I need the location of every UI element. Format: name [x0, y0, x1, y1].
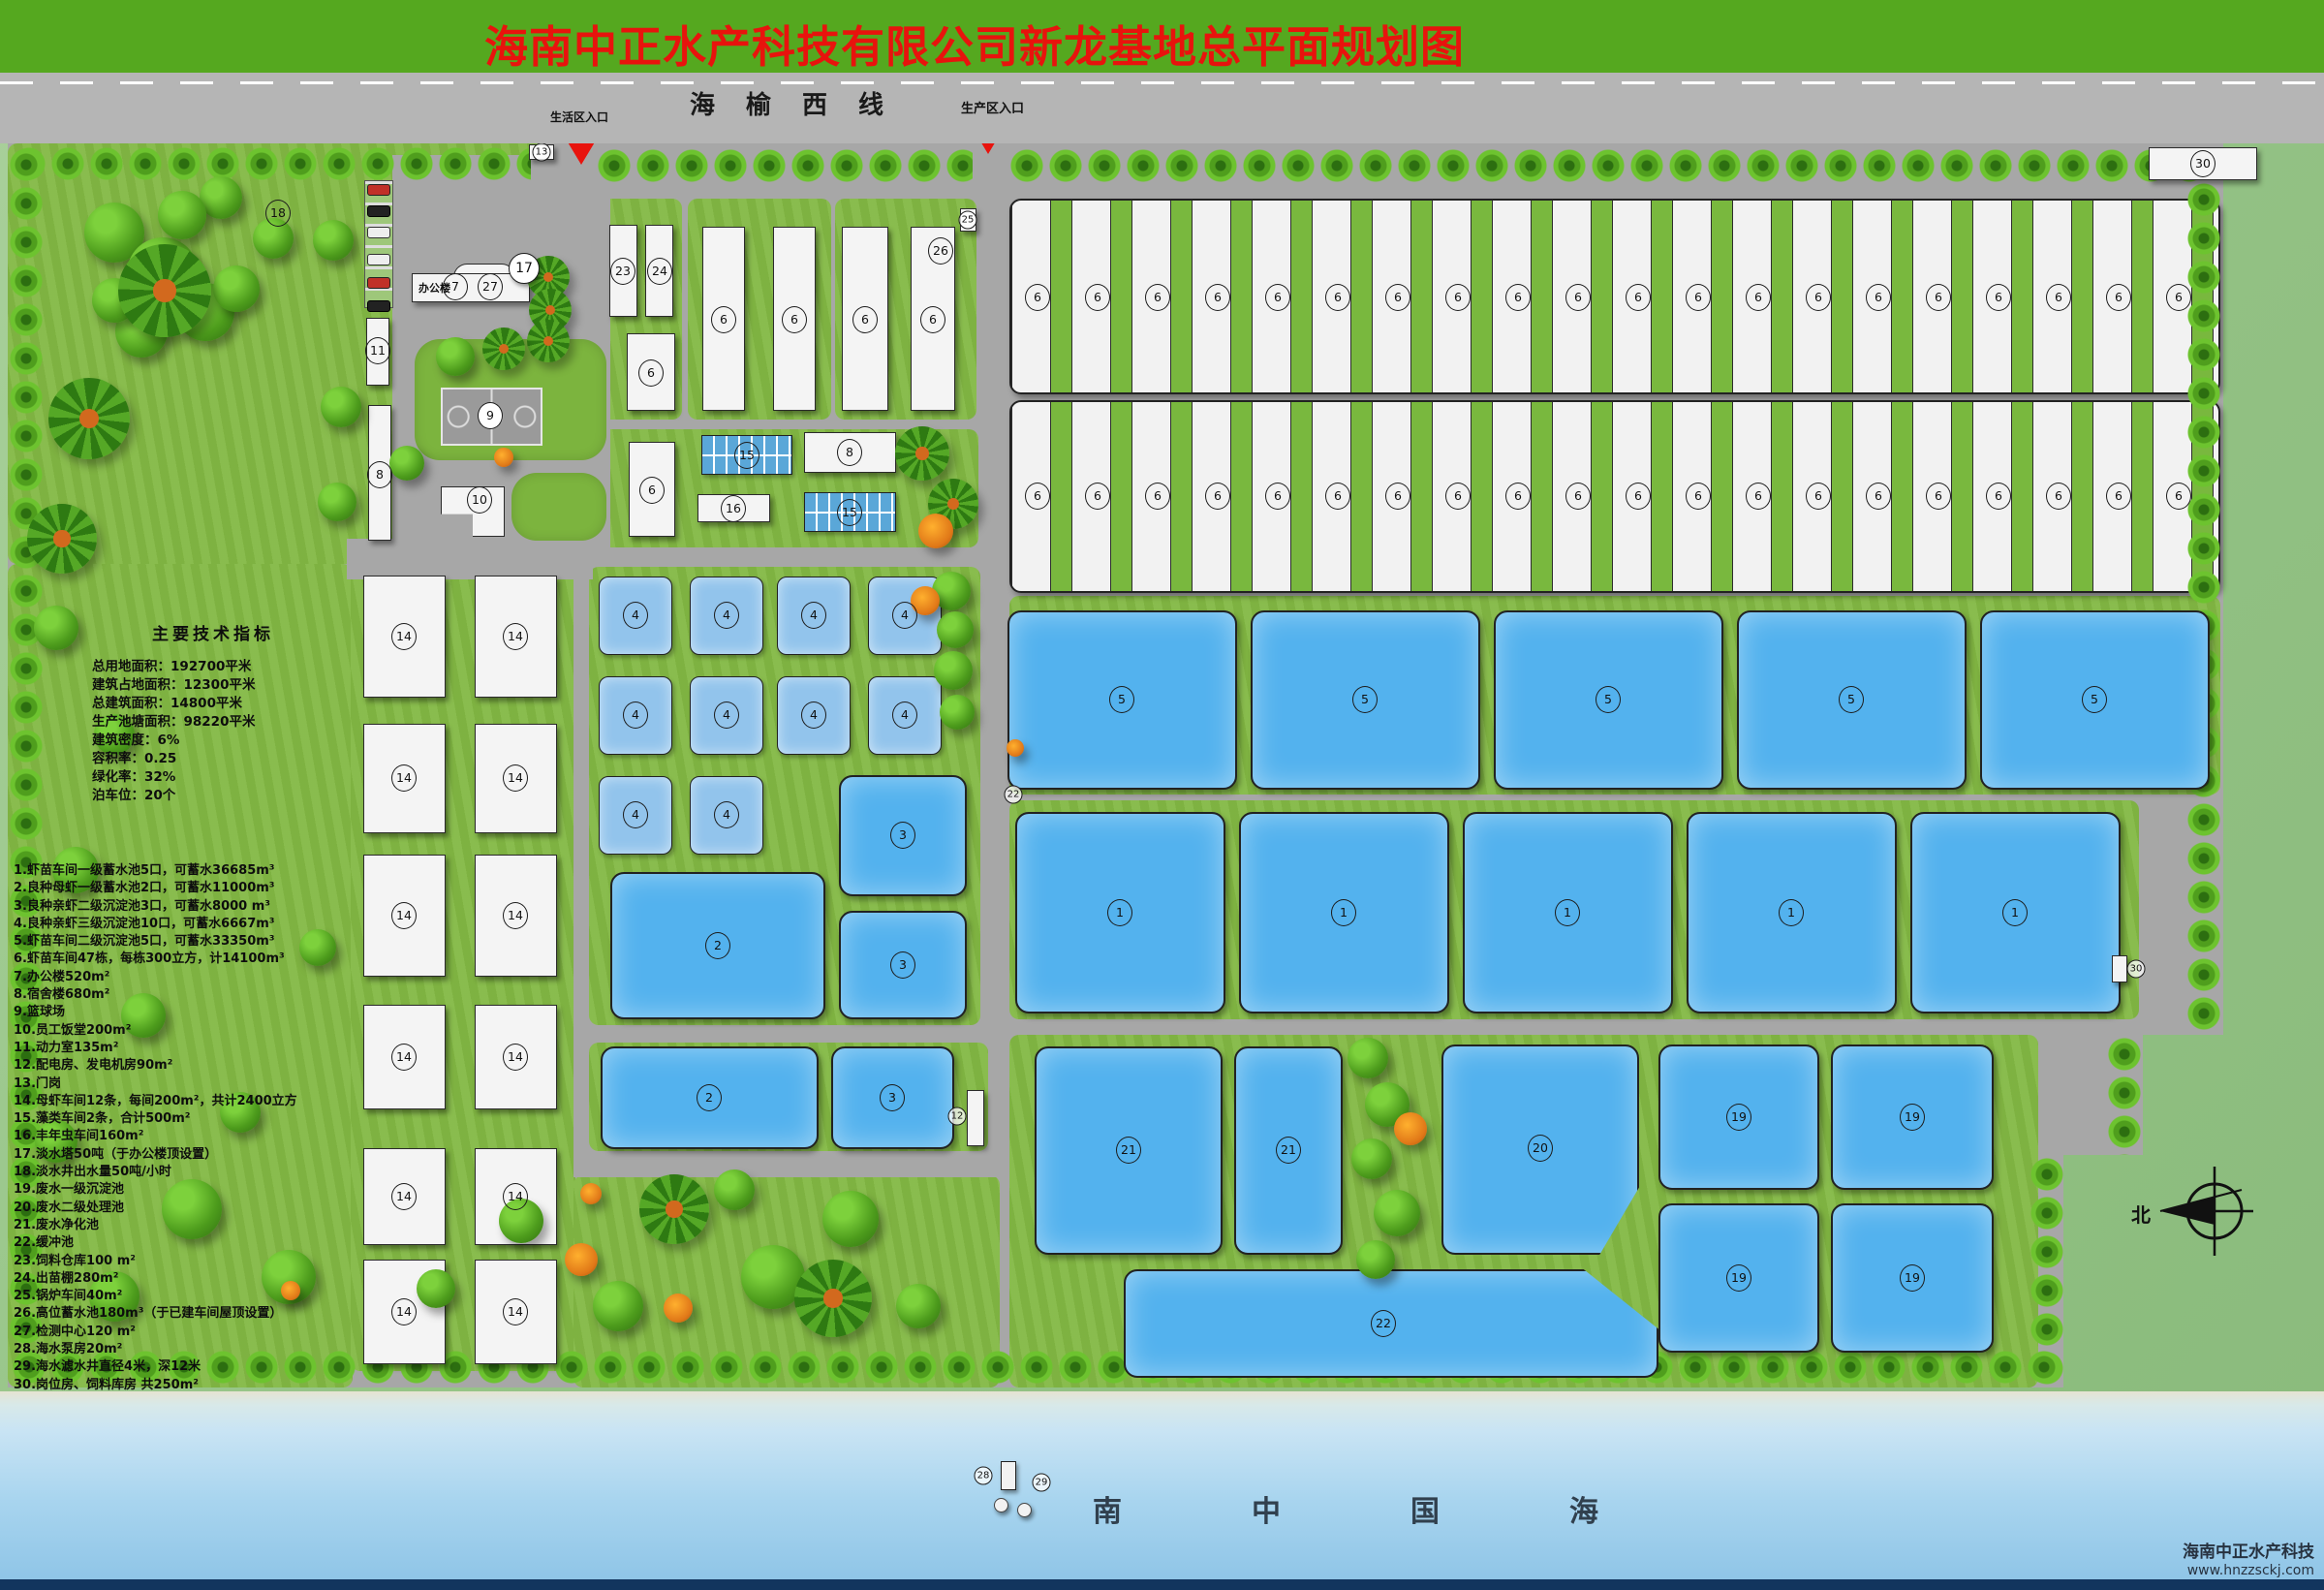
list-line: 27.检测中心120 m²	[14, 1324, 362, 1341]
circled-label-13: 13	[533, 143, 551, 162]
list-line: 20.废水二级处理池	[14, 1200, 362, 1217]
strips	[1009, 199, 2220, 394]
circled-label-14: 14	[503, 623, 528, 650]
circled-label-4: 4	[892, 701, 917, 729]
road	[573, 1152, 1000, 1177]
circled-label-6: 6	[1505, 284, 1531, 311]
tech-indicators-block: 主要技术指标 总用地面积：192700平米建筑占地面积：12300平米总建筑面积…	[92, 620, 334, 805]
legend-block: 1.虾苗车间一级蓄水池5口，可蓄水36685m³2.良种母虾一级蓄水池2口，可蓄…	[14, 862, 362, 1394]
circled-label-1: 1	[1779, 899, 1804, 926]
tree-icon	[822, 1191, 879, 1247]
circled-label-6: 6	[1986, 483, 2011, 510]
site-plan-stage: 1813727171189102324252666666615816156666…	[0, 0, 2324, 1590]
circled-label-6: 6	[2106, 284, 2131, 311]
circled-label-20: 20	[1528, 1135, 1553, 1162]
palm-icon	[48, 378, 130, 459]
circled-label-6: 6	[1265, 284, 1290, 311]
well	[994, 1498, 1008, 1512]
pump	[1001, 1461, 1016, 1490]
circled-label-15: 15	[734, 442, 759, 469]
list-line: 生产池塘面积：98220平米	[92, 713, 334, 732]
list-line: 建筑密度：6%	[92, 732, 334, 750]
living-entrance-label: 生活区入口	[550, 109, 608, 125]
circled-label-6: 6	[1926, 483, 1951, 510]
road	[573, 567, 589, 1175]
list-line: 总用地面积：192700平米	[92, 658, 334, 676]
shrub-icon	[918, 514, 953, 548]
circled-label-6: 6	[2106, 483, 2131, 510]
tree-icon	[417, 1269, 455, 1308]
garden	[511, 473, 606, 541]
circled-label-29: 29	[1033, 1474, 1051, 1492]
circled-label-5: 5	[1596, 686, 1621, 713]
circled-label-5: 5	[1352, 686, 1378, 713]
hedge-v	[2185, 180, 2222, 1035]
tree-icon	[934, 651, 973, 690]
circled-label-14: 14	[391, 623, 417, 650]
hedge-h	[1007, 147, 2220, 184]
circled-label-6: 6	[2046, 483, 2071, 510]
circled-label-6: 6	[782, 306, 807, 333]
circled-label-4: 4	[801, 602, 826, 629]
circled-label-6: 6	[1626, 284, 1651, 311]
tree-icon	[593, 1281, 643, 1331]
circled-label-1: 1	[2002, 899, 2028, 926]
circled-label-14: 14	[503, 1044, 528, 1071]
parking	[364, 180, 393, 308]
circled-label-6: 6	[1565, 483, 1591, 510]
circled-label-19: 19	[1726, 1264, 1751, 1292]
circled-label-9: 9	[478, 402, 503, 429]
circled-label-6: 6	[1806, 483, 1831, 510]
hedge-h	[10, 145, 531, 182]
compass-north-label: 北	[2131, 1200, 2151, 1228]
circled-label-1: 1	[1331, 899, 1356, 926]
circled-label-23: 23	[610, 258, 635, 285]
car-r	[367, 277, 390, 289]
circled-label-4: 4	[801, 701, 826, 729]
car-w	[367, 227, 390, 238]
tree-icon	[389, 446, 424, 481]
list-line: 8.宿舍楼680m²	[14, 986, 362, 1004]
circled-label-6: 6	[1025, 483, 1050, 510]
tree-icon	[436, 337, 475, 376]
circled-label-3: 3	[890, 822, 915, 849]
circled-label-2: 2	[697, 1084, 722, 1111]
tree-icon	[1351, 1138, 1392, 1179]
circled-label-14: 14	[391, 1298, 417, 1325]
circled-label-6: 6	[1445, 284, 1471, 311]
circled-label-6: 6	[638, 359, 664, 387]
circled-label-5: 5	[1839, 686, 1864, 713]
tree-icon	[714, 1169, 755, 1210]
list-line: 21.废水净化池	[14, 1217, 362, 1234]
list-line: 6.虾苗车间47栋，每栋300立方，计14100m³	[14, 951, 362, 968]
circled-label-6: 6	[1505, 483, 1531, 510]
circled-label-14: 14	[503, 764, 528, 792]
list-line: 29.海水滤水井直径4米，深12米	[14, 1358, 362, 1376]
tree-icon	[313, 220, 354, 261]
circled-label-6: 6	[1746, 284, 1771, 311]
b	[967, 1090, 984, 1146]
tree-icon	[940, 695, 975, 730]
circled-label-6: 6	[1866, 284, 1891, 311]
list-line: 19.废水一级沉淀池	[14, 1181, 362, 1199]
tree-icon	[937, 611, 974, 648]
b	[2112, 955, 2127, 982]
list-line: 5.虾苗车间二级沉淀池5口，可蓄水33350m³	[14, 933, 362, 951]
circled-label-14: 14	[391, 1183, 417, 1210]
palm-icon	[794, 1260, 872, 1337]
circled-label-19: 19	[1900, 1104, 1925, 1131]
circled-label-6: 6	[920, 306, 945, 333]
circled-label-19: 19	[1900, 1264, 1925, 1292]
circled-label-22: 22	[1005, 786, 1023, 804]
circled-label-6: 6	[639, 477, 665, 504]
palm-icon	[482, 327, 525, 370]
tree-icon	[1356, 1240, 1395, 1279]
tree-icon	[158, 191, 206, 239]
circled-label-30: 30	[2127, 960, 2146, 979]
list-line: 10.员工饭堂200m²	[14, 1022, 362, 1040]
circled-label-6: 6	[2166, 483, 2191, 510]
circled-label-6: 6	[1325, 284, 1350, 311]
circled-label-6: 6	[1385, 284, 1410, 311]
circled-label-6: 6	[1806, 284, 1831, 311]
sea-bottom-bar	[0, 1579, 2324, 1590]
circled-label-4: 4	[623, 801, 648, 828]
circled-label-6: 6	[1145, 483, 1170, 510]
circled-label-6: 6	[1445, 483, 1471, 510]
circled-label-14: 14	[503, 1298, 528, 1325]
car-w	[367, 254, 390, 265]
production-entrance-label: 生产区入口	[961, 98, 1024, 116]
circled-label-4: 4	[714, 701, 739, 729]
list-line: 1.虾苗车间一级蓄水池5口，可蓄水36685m³	[14, 862, 362, 880]
circled-label-17: 17	[509, 253, 540, 284]
list-line: 26.高位蓄水池180m³（于已建车间屋顶设置）	[14, 1305, 362, 1323]
circled-label-4: 4	[623, 602, 648, 629]
hedge-v	[2106, 1035, 2141, 1155]
tree-icon	[318, 483, 356, 521]
list-line: 2.良种母虾一级蓄水池2口，可蓄水11000m³	[14, 880, 362, 897]
circled-label-14: 14	[503, 1183, 528, 1210]
road-name-label: 海榆西线	[690, 85, 914, 121]
hedge-h	[595, 147, 973, 184]
list-line: 15.藻类车间2条，合计500m²	[14, 1110, 362, 1128]
list-line: 绿化率：32%	[92, 768, 334, 787]
palm-icon	[27, 504, 97, 574]
circled-label-10: 10	[467, 486, 492, 514]
list-line: 9.篮球场	[14, 1004, 362, 1021]
list-line: 4.良种亲虾三级沉淀池10口，可蓄水6667m³	[14, 916, 362, 933]
circled-label-15: 15	[837, 499, 862, 526]
tree-icon	[213, 265, 260, 312]
circled-label-22: 22	[1371, 1310, 1396, 1337]
list-line: 24.出苗棚280m²	[14, 1270, 362, 1288]
circled-label-3: 3	[890, 951, 915, 979]
tree-icon	[896, 1284, 941, 1328]
circled-label-6: 6	[1145, 284, 1170, 311]
circled-label-14: 14	[391, 1044, 417, 1071]
circled-label-11: 11	[365, 337, 390, 364]
compass-icon	[2154, 1163, 2263, 1260]
circled-label-6: 6	[711, 306, 736, 333]
list-line: 3.良种亲虾二级沉淀池3口，可蓄水8000 m³	[14, 898, 362, 916]
list-line: 23.饲料仓库100 m²	[14, 1253, 362, 1270]
list-line: 18.淡水井出水量50吨/小时	[14, 1164, 362, 1181]
circled-label-6: 6	[1025, 284, 1050, 311]
circled-label-1: 1	[1107, 899, 1132, 926]
palm-icon	[895, 426, 949, 481]
shrub-icon	[1007, 739, 1024, 757]
circled-label-8: 8	[367, 461, 392, 488]
tree-icon	[1348, 1038, 1388, 1078]
list-line: 17.淡水塔50吨（于办公楼顶设置）	[14, 1146, 362, 1164]
list-line: 容积率：0.25	[92, 750, 334, 768]
circled-label-4: 4	[714, 801, 739, 828]
legend-list: 1.虾苗车间一级蓄水池5口，可蓄水36685m³2.良种母虾一级蓄水池2口，可蓄…	[14, 862, 362, 1394]
circled-label-2: 2	[705, 932, 730, 959]
circled-label-6: 6	[2046, 284, 2071, 311]
circled-label-6: 6	[852, 306, 878, 333]
company-logo-url: www.hnzzsckj.com	[2183, 1562, 2314, 1579]
shrub-icon	[580, 1183, 602, 1204]
circled-label-5: 5	[2082, 686, 2107, 713]
circled-label-6: 6	[1686, 483, 1711, 510]
shrub-icon	[565, 1243, 598, 1276]
circled-label-14: 14	[503, 902, 528, 929]
circled-label-1: 1	[1555, 899, 1580, 926]
shrub-icon	[1394, 1112, 1427, 1145]
circled-label-6: 6	[1565, 284, 1591, 311]
list-line: 14.母虾车间12条，每间200m²，共计2400立方	[14, 1093, 362, 1110]
car-r	[367, 184, 390, 196]
page-title: 海南中正水产科技有限公司新龙基地总平面规划图	[484, 12, 1841, 75]
circled-label-21: 21	[1276, 1137, 1301, 1164]
list-line: 13.门岗	[14, 1076, 362, 1093]
circled-label-6: 6	[1205, 284, 1230, 311]
circled-label-5: 5	[1109, 686, 1134, 713]
road	[347, 539, 593, 579]
tech-indicators-title: 主要技术指标	[92, 620, 334, 644]
circled-label-6: 6	[1085, 284, 1110, 311]
palm-icon	[527, 320, 570, 362]
circled-label-30: 30	[2190, 150, 2216, 177]
company-logo: 海南中正水产科技 www.hnzzsckj.com	[2183, 1543, 2314, 1579]
circled-label-14: 14	[391, 902, 417, 929]
circled-label-6: 6	[2166, 284, 2191, 311]
circled-label-6: 6	[1205, 483, 1230, 510]
circled-label-6: 6	[1265, 483, 1290, 510]
list-line: 30.岗位房、饲料库房 共250m²	[14, 1377, 362, 1394]
circled-label-6: 6	[1986, 284, 2011, 311]
circled-label-6: 6	[1686, 284, 1711, 311]
list-line: 7.办公楼520m²	[14, 969, 362, 986]
circled-label-16: 16	[721, 495, 746, 522]
circled-label-4: 4	[714, 602, 739, 629]
company-logo-name: 海南中正水产科技	[2183, 1543, 2314, 1562]
road-center-line	[0, 81, 2324, 84]
circled-label-6: 6	[1746, 483, 1771, 510]
circled-label-18: 18	[265, 200, 291, 227]
palm-icon	[639, 1174, 709, 1244]
list-line: 泊车位：20个	[92, 787, 334, 805]
circled-label-4: 4	[892, 602, 917, 629]
circled-label-4: 4	[623, 701, 648, 729]
list-line: 16.丰年虫车间160m²	[14, 1128, 362, 1145]
circled-label-27: 27	[478, 273, 503, 300]
circled-label-3: 3	[880, 1084, 905, 1111]
circled-label-6: 6	[1866, 483, 1891, 510]
list-line: 12.配电房、发电机房90m²	[14, 1057, 362, 1075]
circled-label-28: 28	[975, 1467, 993, 1485]
circled-label-6: 6	[1926, 284, 1951, 311]
list-line: 总建筑面积：14800平米	[92, 695, 334, 713]
car-k	[367, 300, 390, 312]
circled-label-25: 25	[959, 211, 977, 230]
list-line: 建筑占地面积：12300平米	[92, 676, 334, 695]
circled-label-24: 24	[647, 258, 672, 285]
circled-label-6: 6	[1626, 483, 1651, 510]
tree-icon	[1374, 1190, 1420, 1236]
shrub-icon	[664, 1294, 693, 1323]
list-line: 11.动力室135m²	[14, 1040, 362, 1057]
palm-icon	[118, 244, 211, 337]
circled-label-8: 8	[837, 439, 862, 466]
tech-indicators-list: 总用地面积：192700平米建筑占地面积：12300平米总建筑面积：14800平…	[92, 658, 334, 805]
shrub-icon	[494, 448, 513, 467]
circled-label-14: 14	[391, 764, 417, 792]
well	[1017, 1503, 1032, 1517]
sea-name-label: 南 中 国 海	[1093, 1487, 1649, 1530]
strips	[1009, 400, 2220, 593]
car-k	[367, 205, 390, 217]
circled-label-26: 26	[928, 237, 953, 265]
list-line: 22.缓冲池	[14, 1234, 362, 1252]
list-line: 28.海水泵房20m²	[14, 1341, 362, 1358]
office-building-label: 办公楼	[418, 280, 450, 296]
circled-label-6: 6	[1385, 483, 1410, 510]
tree-icon	[34, 606, 78, 650]
tree-icon	[321, 387, 361, 427]
circled-label-12: 12	[948, 1107, 967, 1126]
circled-label-6: 6	[1085, 483, 1110, 510]
circled-label-6: 6	[1325, 483, 1350, 510]
list-line: 25.锅炉车间40m²	[14, 1288, 362, 1305]
circled-label-19: 19	[1726, 1104, 1751, 1131]
circled-label-21: 21	[1116, 1137, 1141, 1164]
